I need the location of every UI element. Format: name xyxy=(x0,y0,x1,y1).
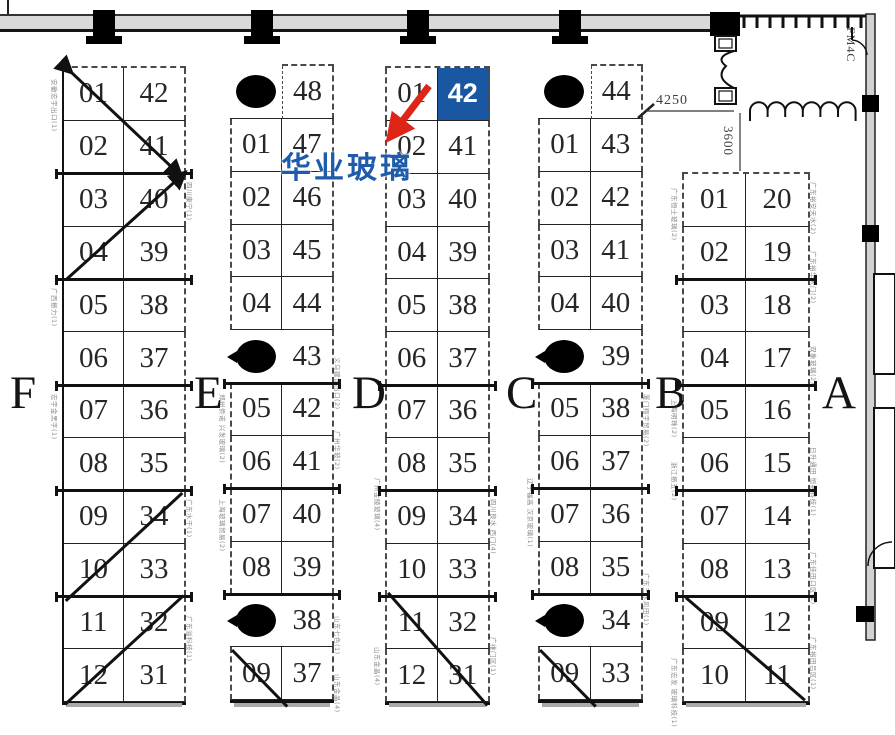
booth-cell-B-06: 06 xyxy=(682,438,746,491)
exhibitor-label: 山东七色(1) xyxy=(333,616,343,655)
booth-cell-D-39: 39 xyxy=(438,227,491,280)
zone-letter-E: E xyxy=(194,366,223,420)
booth-cell-D-35: 35 xyxy=(438,438,491,491)
booth-row: 0934 xyxy=(385,491,490,544)
group-wall xyxy=(531,487,650,490)
group-wall xyxy=(55,489,193,492)
booth-row: 0242 xyxy=(538,172,643,225)
booth-cell-D-06: 06 xyxy=(385,332,438,385)
booth-cell-F-32: 32 xyxy=(124,596,186,649)
booth-row: 44 xyxy=(538,66,643,119)
booth-cell-D-38: 38 xyxy=(438,279,491,332)
group-wall xyxy=(223,487,341,490)
booth-cell-B-20: 20 xyxy=(746,174,810,227)
booth-cell-E-41: 41 xyxy=(282,436,334,489)
booth-cell-B-16: 16 xyxy=(746,385,810,438)
group-wall xyxy=(675,595,817,598)
exhibitor-label: 厦门翔宇贸易(2) xyxy=(642,394,652,447)
booth-cell-E-37: 37 xyxy=(282,647,334,700)
booth-cell-C-02: 02 xyxy=(538,172,591,225)
block-shadow xyxy=(542,703,639,707)
booth-cell-E-05: 05 xyxy=(230,383,282,436)
booth-row: 0542 xyxy=(230,383,334,436)
booth-cell-B-02: 02 xyxy=(682,227,746,280)
booth-cell-F-01: 01 xyxy=(62,68,124,121)
block-shadow xyxy=(66,703,182,707)
accordion-partition xyxy=(750,102,856,111)
booth-cell-E-44: 44 xyxy=(282,277,334,330)
booth-cell-B-10: 10 xyxy=(682,649,746,702)
booth-cell-C-09: 09 xyxy=(538,647,591,700)
booth-cell-B-11: 11 xyxy=(746,649,810,702)
booth-row: 0714 xyxy=(682,491,810,544)
booth-cell-B-18: 18 xyxy=(746,279,810,332)
booth-cell-E-07: 07 xyxy=(230,489,282,542)
booth-row: 38 xyxy=(230,594,334,647)
dimension-3600: 3600 xyxy=(720,126,736,156)
booth-cell-B-15: 15 xyxy=(746,438,810,491)
booth-row: 0934 xyxy=(62,491,186,544)
exhibitor-label: 四川良水 西门(4) xyxy=(489,499,499,554)
booth-cell-F-33: 33 xyxy=(124,544,186,597)
booth-cell-B-13: 13 xyxy=(746,544,810,597)
booth-row: 0637 xyxy=(538,436,643,489)
exhibitor-label: 山东金晶(4) xyxy=(333,674,343,713)
group-wall xyxy=(531,593,650,596)
booth-cell-E-09: 09 xyxy=(230,647,282,700)
exhibitor-label: 四川康宁(1) xyxy=(185,182,195,221)
wall-column xyxy=(93,10,115,36)
booth-cell-C-34: 34 xyxy=(591,594,644,647)
booth-row: 0736 xyxy=(385,385,490,438)
exhibitor-label: 广东水干(1) xyxy=(185,499,195,538)
group-wall xyxy=(675,384,817,387)
booth-row: 0736 xyxy=(538,489,643,542)
booth-cell-D-10: 10 xyxy=(385,544,438,597)
pillar-icon xyxy=(544,340,584,373)
booth-row: 0439 xyxy=(385,227,490,280)
booth-cell-F-42: 42 xyxy=(124,68,186,121)
wall-column xyxy=(251,10,273,36)
door-jamb-inner xyxy=(719,91,732,101)
booth-cell-C-05: 05 xyxy=(538,383,591,436)
booth-cell-C-35: 35 xyxy=(591,542,644,595)
booth-cell-D-41: 41 xyxy=(438,121,491,174)
booth-row: 0912 xyxy=(682,596,810,649)
booth-row: 0440 xyxy=(538,277,643,330)
booth-cell-E-48: 48 xyxy=(282,66,334,119)
group-wall xyxy=(675,489,817,492)
booth-cell-B-12: 12 xyxy=(746,596,810,649)
booth-cell-B-03: 03 xyxy=(682,279,746,332)
booth-cell-C-40: 40 xyxy=(591,277,644,330)
booth-row: 0417 xyxy=(682,332,810,385)
booth-cell-C-07: 07 xyxy=(538,489,591,542)
booth-cell-E-03: 03 xyxy=(230,225,282,278)
zone-letter-D: D xyxy=(352,366,386,420)
booth-cell-F-08: 08 xyxy=(62,438,124,491)
exhibitor-label: 广东恒士玻璃(2) xyxy=(670,188,680,241)
booth-cell-F-36: 36 xyxy=(124,385,186,438)
right-wall xyxy=(866,14,875,640)
floorplan: 0142024103400439053806370736083509341033… xyxy=(0,0,895,735)
highlighted-booth-cell-D-42: 42 xyxy=(438,68,491,121)
booth-cell-C-38: 38 xyxy=(591,383,644,436)
exhibitor-label: 广维门区(1) xyxy=(489,637,499,676)
booth-row: 0142 xyxy=(62,68,186,121)
booth-cell-F-07: 07 xyxy=(62,385,124,438)
pillar-cell xyxy=(538,66,591,119)
booth-row: 0143 xyxy=(538,119,643,172)
booth-cell-C-36: 36 xyxy=(591,489,644,542)
exhibitor-label: 山东金晶(4) xyxy=(373,647,383,686)
booth-cell-B-08: 08 xyxy=(682,544,746,597)
partial-top-border xyxy=(591,64,644,66)
booth-cell-D-11: 11 xyxy=(385,596,438,649)
booth-row: 0120 xyxy=(682,174,810,227)
booth-cell-B-01: 01 xyxy=(682,174,746,227)
door-jamb xyxy=(715,88,736,104)
wall-block xyxy=(862,225,879,242)
wall-block xyxy=(856,606,874,622)
booth-cell-D-37: 37 xyxy=(438,332,491,385)
accordion-ticks xyxy=(750,111,856,121)
booth-row: 1132 xyxy=(385,596,490,649)
wall-column-base xyxy=(86,36,122,44)
booth-cell-F-10: 10 xyxy=(62,544,124,597)
booth-cell-F-06: 06 xyxy=(62,332,124,385)
booth-row: 0538 xyxy=(538,383,643,436)
wall-block xyxy=(862,95,879,112)
booth-cell-C-33: 33 xyxy=(591,647,644,700)
booth-cell-C-01: 01 xyxy=(538,119,591,172)
booth-cell-F-09: 09 xyxy=(62,491,124,544)
booth-row: 0142 xyxy=(385,68,490,121)
booth-cell-D-36: 36 xyxy=(438,385,491,438)
booth-cell-F-37: 37 xyxy=(124,332,186,385)
pillar-cell xyxy=(538,330,591,383)
booth-row: 0637 xyxy=(385,332,490,385)
wall-column-base xyxy=(400,36,436,44)
booth-row: 0444 xyxy=(230,277,334,330)
booth-cell-D-34: 34 xyxy=(438,491,491,544)
booth-cell-E-39: 39 xyxy=(282,542,334,595)
door-code-fm4c: FM4C xyxy=(843,27,858,62)
booth-cell-F-38: 38 xyxy=(124,279,186,332)
side-room xyxy=(874,274,895,374)
group-wall xyxy=(55,278,193,281)
pillar-icon xyxy=(544,604,584,637)
group-wall xyxy=(55,384,193,387)
booth-row: 39 xyxy=(538,330,643,383)
booth-cell-C-37: 37 xyxy=(591,436,644,489)
booth-row: 0835 xyxy=(385,438,490,491)
group-wall xyxy=(223,382,341,385)
wall-column xyxy=(407,10,429,36)
booth-row: 48 xyxy=(230,66,334,119)
booth-cell-D-09: 09 xyxy=(385,491,438,544)
company-annotation: 华业玻璃 xyxy=(281,143,413,187)
booth-row: 0637 xyxy=(62,332,186,385)
door-jamb-inner xyxy=(719,39,732,48)
booth-cell-F-39: 39 xyxy=(124,227,186,280)
booth-row: 1033 xyxy=(62,544,186,597)
booth-cell-C-43: 43 xyxy=(591,119,644,172)
exhibitor-label: 宏宇金黑字(1) xyxy=(50,394,60,440)
block-shadow xyxy=(389,703,486,707)
zone-letter-C: C xyxy=(506,366,537,420)
pillar-cell xyxy=(538,594,591,647)
pillar-cell xyxy=(230,594,282,647)
booth-row: 0340 xyxy=(62,174,186,227)
booth-row: 34 xyxy=(538,594,643,647)
booth-cell-C-42: 42 xyxy=(591,172,644,225)
booth-cell-B-09: 09 xyxy=(682,596,746,649)
booth-cell-B-17: 17 xyxy=(746,332,810,385)
group-wall xyxy=(531,382,650,385)
wall-column xyxy=(559,10,581,36)
booth-cell-B-19: 19 xyxy=(746,227,810,280)
block-shadow xyxy=(234,703,330,707)
booth-cell-F-40: 40 xyxy=(124,174,186,227)
booth-cell-F-11: 11 xyxy=(62,596,124,649)
booth-row: 0439 xyxy=(62,227,186,280)
exhibitor-label: 上海玻璃贸易(2) xyxy=(218,499,228,552)
booth-row: 0835 xyxy=(62,438,186,491)
booth-cell-D-40: 40 xyxy=(438,174,491,227)
booth-row: 1231 xyxy=(62,649,186,702)
side-door-arc xyxy=(868,542,892,566)
group-wall xyxy=(223,593,341,596)
exhibitor-label: 日升通田 恒裕科技(1) xyxy=(809,447,819,516)
booth-row: 0933 xyxy=(538,647,643,700)
pillar-cell xyxy=(230,66,282,119)
booth-cell-C-06: 06 xyxy=(538,436,591,489)
booth-cell-F-05: 05 xyxy=(62,279,124,332)
block-shadow xyxy=(686,703,806,707)
booth-cell-E-40: 40 xyxy=(282,489,334,542)
zone-block-F: 0142024103400439053806370736083509341033… xyxy=(62,66,186,705)
pillar-icon xyxy=(236,604,276,637)
exhibitor-label: 广西振力(1) xyxy=(50,288,60,327)
pillar-icon xyxy=(544,75,584,108)
group-wall xyxy=(378,489,497,492)
partial-top-border xyxy=(282,64,334,66)
pillar-cell xyxy=(230,330,282,383)
booth-cell-F-34: 34 xyxy=(124,491,186,544)
pillar-icon xyxy=(236,340,276,373)
booth-cell-C-03: 03 xyxy=(538,225,591,278)
booth-cell-F-31: 31 xyxy=(124,649,186,702)
booth-cell-D-05: 05 xyxy=(385,279,438,332)
booth-cell-F-41: 41 xyxy=(124,121,186,174)
booth-cell-E-01: 01 xyxy=(230,119,282,172)
booth-row: 0641 xyxy=(230,436,334,489)
booth-row: 0516 xyxy=(682,385,810,438)
door-leaf-icon xyxy=(722,51,735,88)
exhibitor-label: 安徽宏宇出口(1) xyxy=(50,79,60,132)
exhibitor-label: 广东溢科技(1) xyxy=(185,616,195,662)
booth-cell-D-01: 01 xyxy=(385,68,438,121)
wall-column-base xyxy=(552,36,588,44)
booth-cell-D-32: 32 xyxy=(438,596,491,649)
booth-row: 0839 xyxy=(230,542,334,595)
exhibitor-label: 广州华玻(2) xyxy=(333,431,343,470)
group-wall xyxy=(378,384,497,387)
booth-cell-C-39: 39 xyxy=(591,330,644,383)
booth-row: 0341 xyxy=(538,225,643,278)
booth-cell-D-12: 12 xyxy=(385,649,438,702)
side-room xyxy=(874,408,895,568)
booth-cell-E-06: 06 xyxy=(230,436,282,489)
booth-cell-E-38: 38 xyxy=(282,594,334,647)
booth-row: 0736 xyxy=(62,385,186,438)
zone-letter-F: F xyxy=(10,366,36,420)
booth-cell-D-04: 04 xyxy=(385,227,438,280)
booth-row: 1132 xyxy=(62,596,186,649)
group-wall xyxy=(55,172,193,175)
booth-row: 0835 xyxy=(538,542,643,595)
booth-cell-B-14: 14 xyxy=(746,491,810,544)
booth-cell-E-04: 04 xyxy=(230,277,282,330)
booth-row: 0318 xyxy=(682,279,810,332)
exhibitor-label: 广东裕田吕区(1) xyxy=(809,637,819,690)
booth-cell-F-03: 03 xyxy=(62,174,124,227)
booth-cell-C-08: 08 xyxy=(538,542,591,595)
exhibitor-label: 广东宏发 玻璃科技(1) xyxy=(670,658,680,727)
booth-cell-E-08: 08 xyxy=(230,542,282,595)
booth-cell-D-07: 07 xyxy=(385,385,438,438)
booth-cell-E-43: 43 xyxy=(282,330,334,383)
booth-cell-B-04: 04 xyxy=(682,332,746,385)
group-wall xyxy=(55,595,193,598)
booth-cell-B-05: 05 xyxy=(682,385,746,438)
booth-row: 0345 xyxy=(230,225,334,278)
booth-cell-E-45: 45 xyxy=(282,225,334,278)
booth-row: 1231 xyxy=(385,649,490,702)
booth-cell-E-02: 02 xyxy=(230,172,282,225)
dimension-4250: 4250 xyxy=(656,93,688,109)
pillar-icon xyxy=(236,75,276,108)
booth-cell-C-04: 04 xyxy=(538,277,591,330)
group-wall xyxy=(675,278,817,281)
exhibitor-label: 广东裕安天水(2) xyxy=(809,182,819,235)
booth-cell-F-12: 12 xyxy=(62,649,124,702)
booth-cell-D-31: 31 xyxy=(438,649,491,702)
booth-cell-E-42: 42 xyxy=(282,383,334,436)
zone-block-C: 4401430242034104403905380637073608353409… xyxy=(538,66,643,703)
booth-row: 0538 xyxy=(62,279,186,332)
zone-block-B: 0120021903180417051606150714081309121011 xyxy=(682,172,810,706)
booth-cell-D-33: 33 xyxy=(438,544,491,597)
door-jamb xyxy=(715,36,736,51)
booth-cell-F-02: 02 xyxy=(62,121,124,174)
booth-row: 0813 xyxy=(682,544,810,597)
booth-row: 0615 xyxy=(682,438,810,491)
booth-row: 0241 xyxy=(62,121,186,174)
booth-cell-C-44: 44 xyxy=(591,66,644,119)
booth-row: 0937 xyxy=(230,647,334,700)
booth-cell-D-08: 08 xyxy=(385,438,438,491)
wall-column-base xyxy=(244,36,280,44)
exhibitor-label: 双象玻璃(2) xyxy=(809,346,819,385)
booth-row: 0538 xyxy=(385,279,490,332)
zone-letter-A: A xyxy=(822,366,856,420)
booth-row: 0219 xyxy=(682,227,810,280)
booth-row: 43 xyxy=(230,330,334,383)
booth-cell-C-41: 41 xyxy=(591,225,644,278)
booth-row: 1033 xyxy=(385,544,490,597)
booth-cell-F-35: 35 xyxy=(124,438,186,491)
booth-cell-F-04: 04 xyxy=(62,227,124,280)
booth-row: 0740 xyxy=(230,489,334,542)
booth-cell-B-07: 07 xyxy=(682,491,746,544)
group-wall xyxy=(378,595,497,598)
booth-row: 1011 xyxy=(682,649,810,702)
